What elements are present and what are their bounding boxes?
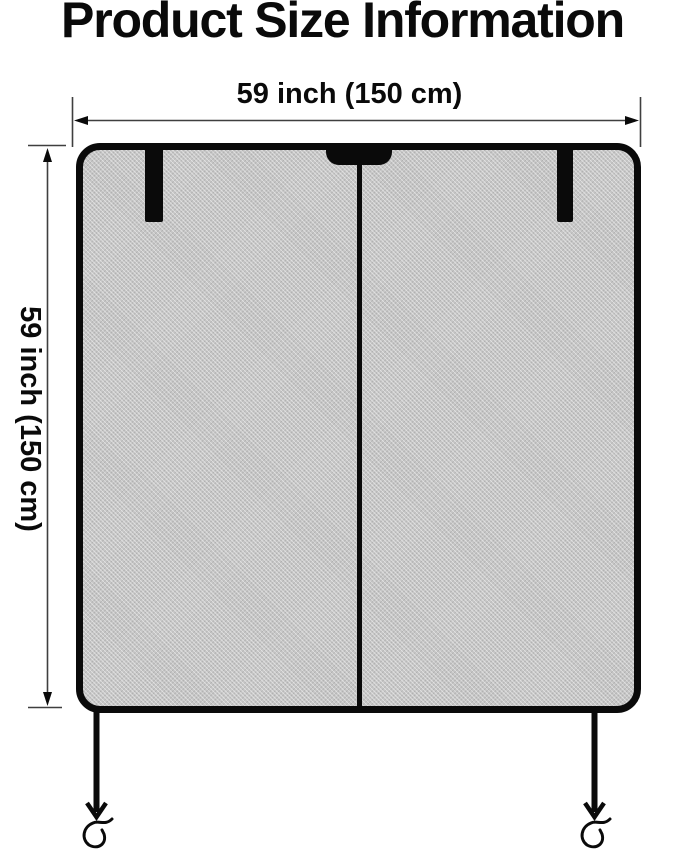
left-leg-with-hook-icon — [84, 710, 112, 847]
height-dimension-arrow — [28, 146, 66, 708]
right-arrowhead-icon — [625, 116, 639, 125]
up-arrowhead-icon — [43, 148, 52, 162]
mesh-screen-panel — [76, 143, 641, 713]
down-arrowhead-icon — [43, 692, 52, 706]
left-strap-icon — [145, 150, 163, 222]
width-dimension-arrow — [73, 97, 641, 147]
product-size-diagram: Product Size Information 59 inch (150 cm… — [0, 0, 679, 849]
right-leg-with-hook-icon — [582, 710, 610, 847]
right-strap-icon — [557, 150, 573, 222]
center-zipper-divider — [357, 162, 362, 706]
left-arrowhead-icon — [74, 116, 88, 125]
